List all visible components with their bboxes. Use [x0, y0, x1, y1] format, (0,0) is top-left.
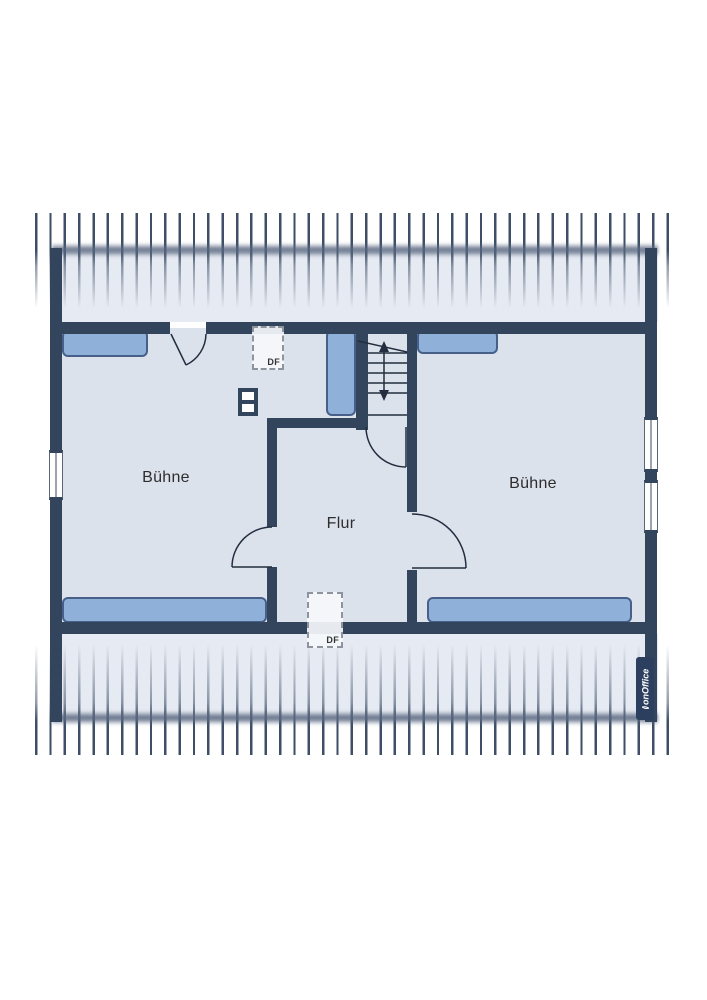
onoffice-logo-icon: ( ) — [642, 707, 649, 709]
door-top-left-room — [171, 334, 206, 365]
door-flur-to-left-room — [232, 527, 272, 567]
linework-layer — [0, 0, 707, 1000]
door-stairs — [366, 427, 406, 467]
onoffice-logo-text: onOffice — [640, 668, 650, 704]
door-flur-to-right-room — [412, 514, 466, 568]
stairs — [358, 341, 407, 415]
room-label-buehne-left: Bühne — [142, 469, 190, 487]
stair-direction-arrow-icon — [379, 341, 389, 401]
onoffice-watermark: ( ) onOffice — [636, 657, 654, 720]
room-label-flur: Flur — [327, 515, 356, 533]
floorplan-canvas: DF DF — [0, 0, 707, 1000]
room-label-buehne-right: Bühne — [509, 475, 557, 493]
